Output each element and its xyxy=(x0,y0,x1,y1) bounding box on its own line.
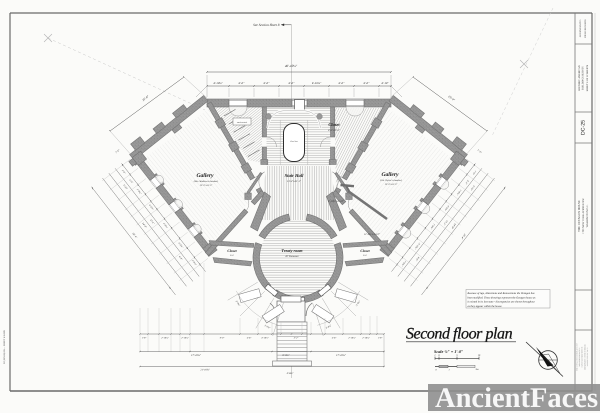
svg-text:Gallery: Gallery xyxy=(196,173,214,179)
svg-text:2′-10¼″: 2′-10¼″ xyxy=(181,337,189,340)
svg-text:6′-0″: 6′-0″ xyxy=(264,81,270,85)
svg-text:MEASURED DRAWINGS: MEASURED DRAWINGS xyxy=(578,348,581,367)
svg-text:been modified. These drawings: been modified. These drawings represent … xyxy=(468,296,536,299)
svg-text:8′-0½″: 8′-0½″ xyxy=(282,354,290,357)
svg-text:3′-10½″: 3′-10½″ xyxy=(261,337,269,340)
svg-text:5′-10½″x3′-10″: 5′-10½″x3′-10″ xyxy=(328,200,345,203)
svg-text:Closet: Closet xyxy=(328,122,340,127)
svg-text:Gallery: Gallery xyxy=(381,172,399,178)
svg-text:Because of Age, Alterations an: Because of Age, Alterations and Restorat… xyxy=(468,292,535,295)
svg-text:(Col. Taylor’s chamber): (Col. Taylor’s chamber) xyxy=(380,179,402,182)
svg-text:DC-25: DC-25 xyxy=(581,120,587,135)
svg-text:WASHINGTON DC 20013: WASHINGTON DC 20013 xyxy=(586,348,589,367)
svg-text:6′-0″: 6′-0″ xyxy=(364,81,370,85)
svg-text:ADDENDUM TO: ADDENDUM TO xyxy=(579,19,582,37)
svg-text:4′-6″: 4′-6″ xyxy=(332,337,337,340)
svg-text:2′-10¼″: 2′-10¼″ xyxy=(348,337,356,340)
svg-text:9′-0″: 9′-0″ xyxy=(220,337,225,340)
svg-text:Treaty room: Treaty room xyxy=(281,248,303,253)
svg-text:20′ Diameter: 20′ Diameter xyxy=(285,255,300,258)
svg-text:BUILDINGS SURVEY: BUILDINGS SURVEY xyxy=(582,66,585,90)
svg-text:3′x5′: 3′x5′ xyxy=(363,254,367,257)
svg-text:1: 1 xyxy=(448,369,449,372)
svg-text:1799 NEW YORK AVENUE NW: 1799 NEW YORK AVENUE NW xyxy=(582,198,585,234)
svg-text:See Section Sheet 8: See Section Sheet 8 xyxy=(253,23,280,27)
svg-text:6′-10¼″: 6′-10¼″ xyxy=(312,81,322,85)
svg-text:AncientFaces: AncientFaces xyxy=(435,383,598,413)
svg-text:FIELD RECORDS: FIELD RECORDS xyxy=(584,19,587,38)
svg-text:Plan Seat: Plan Seat xyxy=(289,140,298,143)
svg-text:17′-10¼″: 17′-10¼″ xyxy=(191,354,202,357)
svg-text:DEPARTMENT OF THE INTERIOR: DEPARTMENT OF THE INTERIOR xyxy=(583,343,586,369)
svg-text:1′-8″: 1′-8″ xyxy=(378,337,383,340)
svg-text:4′-6″: 4′-6″ xyxy=(247,337,252,340)
svg-text:it existed in its last state -: it existed in its last state - discrepan… xyxy=(468,301,535,304)
svg-text:Closet: Closet xyxy=(227,249,237,253)
svg-text:service stair: service stair xyxy=(237,121,247,124)
svg-text:13′-2″x21′-1″: 13′-2″x21′-1″ xyxy=(287,180,302,183)
svg-text:6′-0″: 6′-0″ xyxy=(239,81,245,85)
svg-text:DC,WASH,413— SHEET 6 HABS: DC,WASH,413— SHEET 6 HABS xyxy=(3,329,6,364)
svg-text:2′-10¼″: 2′-10¼″ xyxy=(161,337,169,340)
svg-text:6′-0″: 6′-0″ xyxy=(289,81,295,85)
svg-text:2′-10¼″: 2′-10¼″ xyxy=(362,337,370,340)
svg-text:(Mrs. Madison’s chamber): (Mrs. Madison’s chamber) xyxy=(194,180,219,183)
svg-text:Stair Hall: Stair Hall xyxy=(285,173,304,178)
svg-text:Second floor plan: Second floor plan xyxy=(406,326,513,343)
svg-text:1′-8″: 1′-8″ xyxy=(142,337,147,340)
svg-text:1: 1 xyxy=(434,354,435,357)
svg-text:Closet: Closet xyxy=(360,249,370,253)
svg-text:WASHINGTON D.C.: WASHINGTON D.C. xyxy=(586,204,589,227)
svg-text:4′-6½″: 4′-6½″ xyxy=(287,372,295,375)
svg-text:11′-0½″x3′-10″: 11′-0½″x3′-10″ xyxy=(364,233,381,236)
svg-text:NATIONAL PARK SERVICE: NATIONAL PARK SERVICE xyxy=(581,347,584,368)
svg-text:as they appear within the hous: as they appear within the house. xyxy=(468,305,503,308)
svg-text:3′x5′: 3′x5′ xyxy=(230,254,234,257)
svg-text:THE OCTAGON HOUSE PLANS 2005: THE OCTAGON HOUSE PLANS 2005 xyxy=(576,343,579,371)
svg-text:3m: 3m xyxy=(476,368,479,371)
svg-text:8′-6″x10′-9″: 8′-6″x10′-9″ xyxy=(328,129,341,132)
svg-text:5′-2″: 5′-2″ xyxy=(294,337,299,340)
svg-text:20′-0″x24′-0″: 20′-0″x24′-0″ xyxy=(200,184,212,187)
svg-text:4′-10″: 4′-10″ xyxy=(381,81,389,85)
svg-text:THE OCTAGON HOUSE: THE OCTAGON HOUSE xyxy=(577,200,581,232)
svg-text:SHEET 6 OF 12 SHEETS: SHEET 6 OF 12 SHEETS xyxy=(586,64,589,91)
svg-text:21′-10¾″: 21′-10¾″ xyxy=(200,369,210,372)
svg-text:20′-0″x24′-0″: 20′-0″x24′-0″ xyxy=(385,183,397,186)
svg-text:6′-0″: 6′-0″ xyxy=(339,81,345,85)
svg-text:4′-10¼″: 4′-10¼″ xyxy=(213,81,223,85)
svg-text:46′-10¼″: 46′-10¼″ xyxy=(285,64,298,68)
svg-text:17′-10¼″: 17′-10¼″ xyxy=(336,354,347,357)
